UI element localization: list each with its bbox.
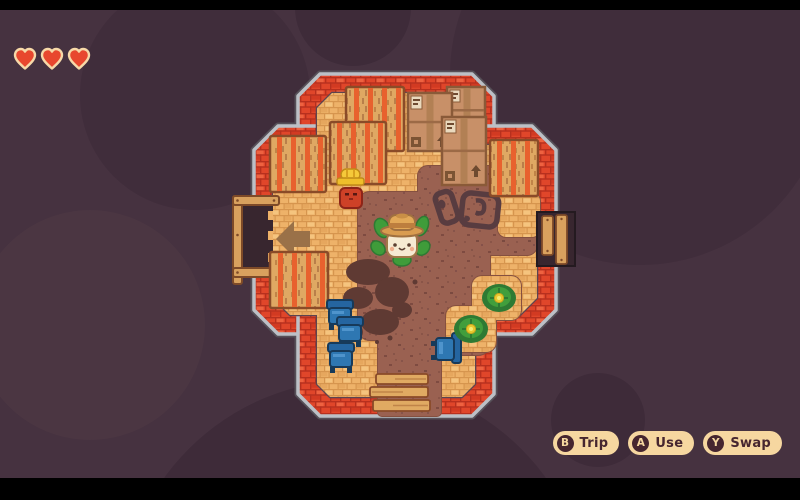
letterbox-top (0, 0, 800, 10)
action-bar: BTripAUseYSwap (553, 431, 782, 455)
lumber-stack (270, 252, 328, 308)
entrance-planks (370, 374, 430, 411)
action-button-use[interactable]: AUse (628, 431, 694, 455)
lumber-stack (490, 140, 538, 196)
east-door (537, 212, 575, 266)
worker-npc (337, 169, 364, 208)
button-label: Swap (730, 436, 771, 451)
background-circle (0, 210, 205, 440)
button-label: Use (655, 436, 683, 451)
lumber-stack (270, 136, 326, 192)
heart-icon (67, 47, 91, 71)
bush (482, 284, 516, 312)
house-building (225, 65, 585, 425)
cardboard-box (442, 117, 486, 185)
button-label: Trip (580, 436, 609, 451)
button-key-icon: B (557, 435, 574, 452)
heart-icon (13, 47, 37, 71)
action-button-swap[interactable]: YSwap (703, 431, 782, 455)
letterbox-bottom (0, 478, 800, 500)
heart-icon (40, 47, 64, 71)
bush (454, 315, 488, 343)
button-key-icon: Y (707, 435, 724, 452)
button-key-icon: A (632, 435, 649, 452)
game-screen: BTripAUseYSwap (0, 0, 800, 500)
action-button-trip[interactable]: BTrip (553, 431, 620, 455)
health-hearts (13, 47, 91, 71)
